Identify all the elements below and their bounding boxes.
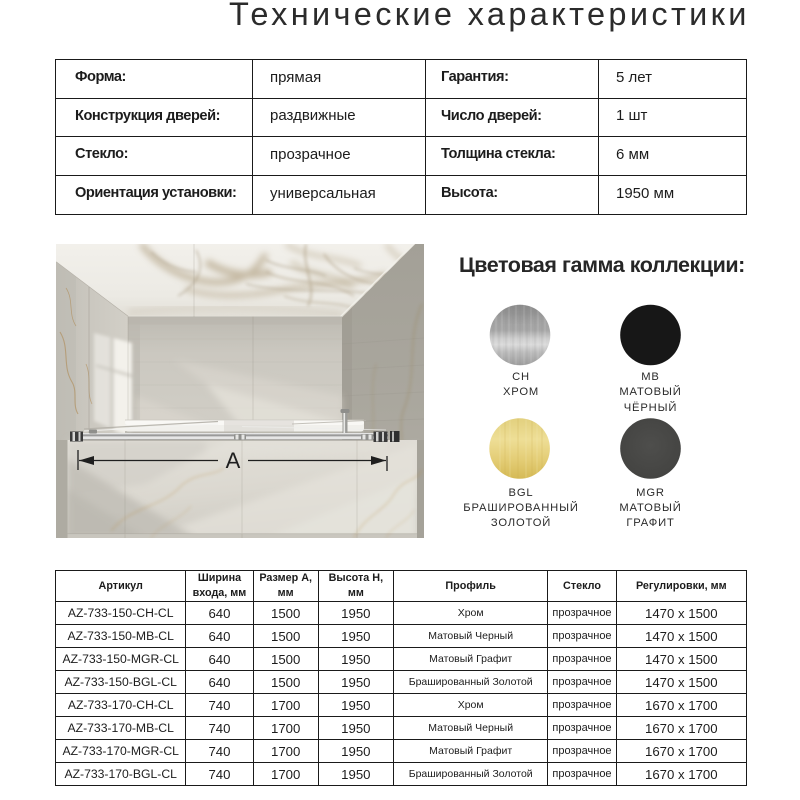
svg-text:A: A [226,448,241,473]
